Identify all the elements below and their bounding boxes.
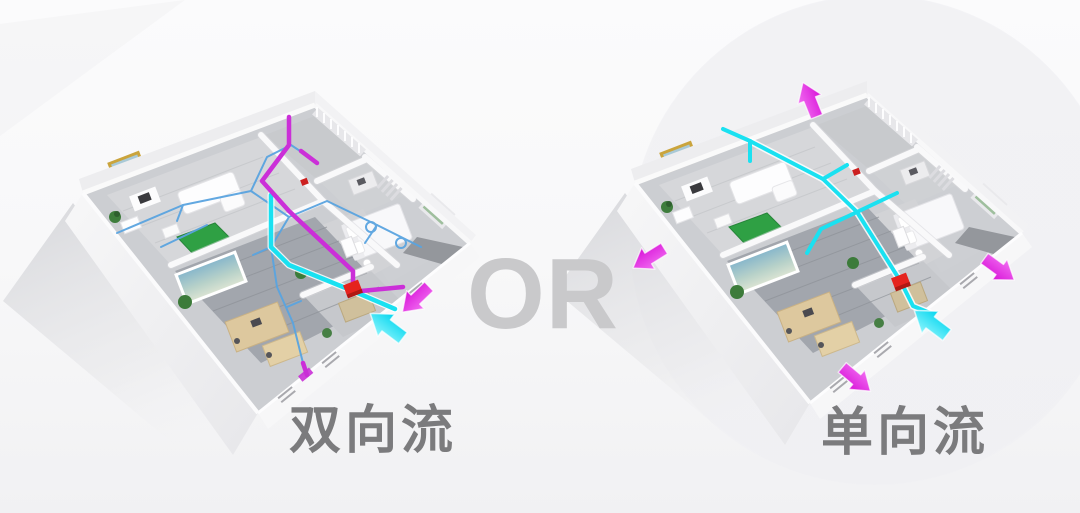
ventilation-comparison-diagram: OR 双向流 单向流 xyxy=(0,0,1080,513)
bidirectional-flow-label: 双向流 xyxy=(289,405,457,457)
separator-or-text: OR xyxy=(467,244,619,344)
unidirectional-flow-label: 单向流 xyxy=(821,407,989,459)
